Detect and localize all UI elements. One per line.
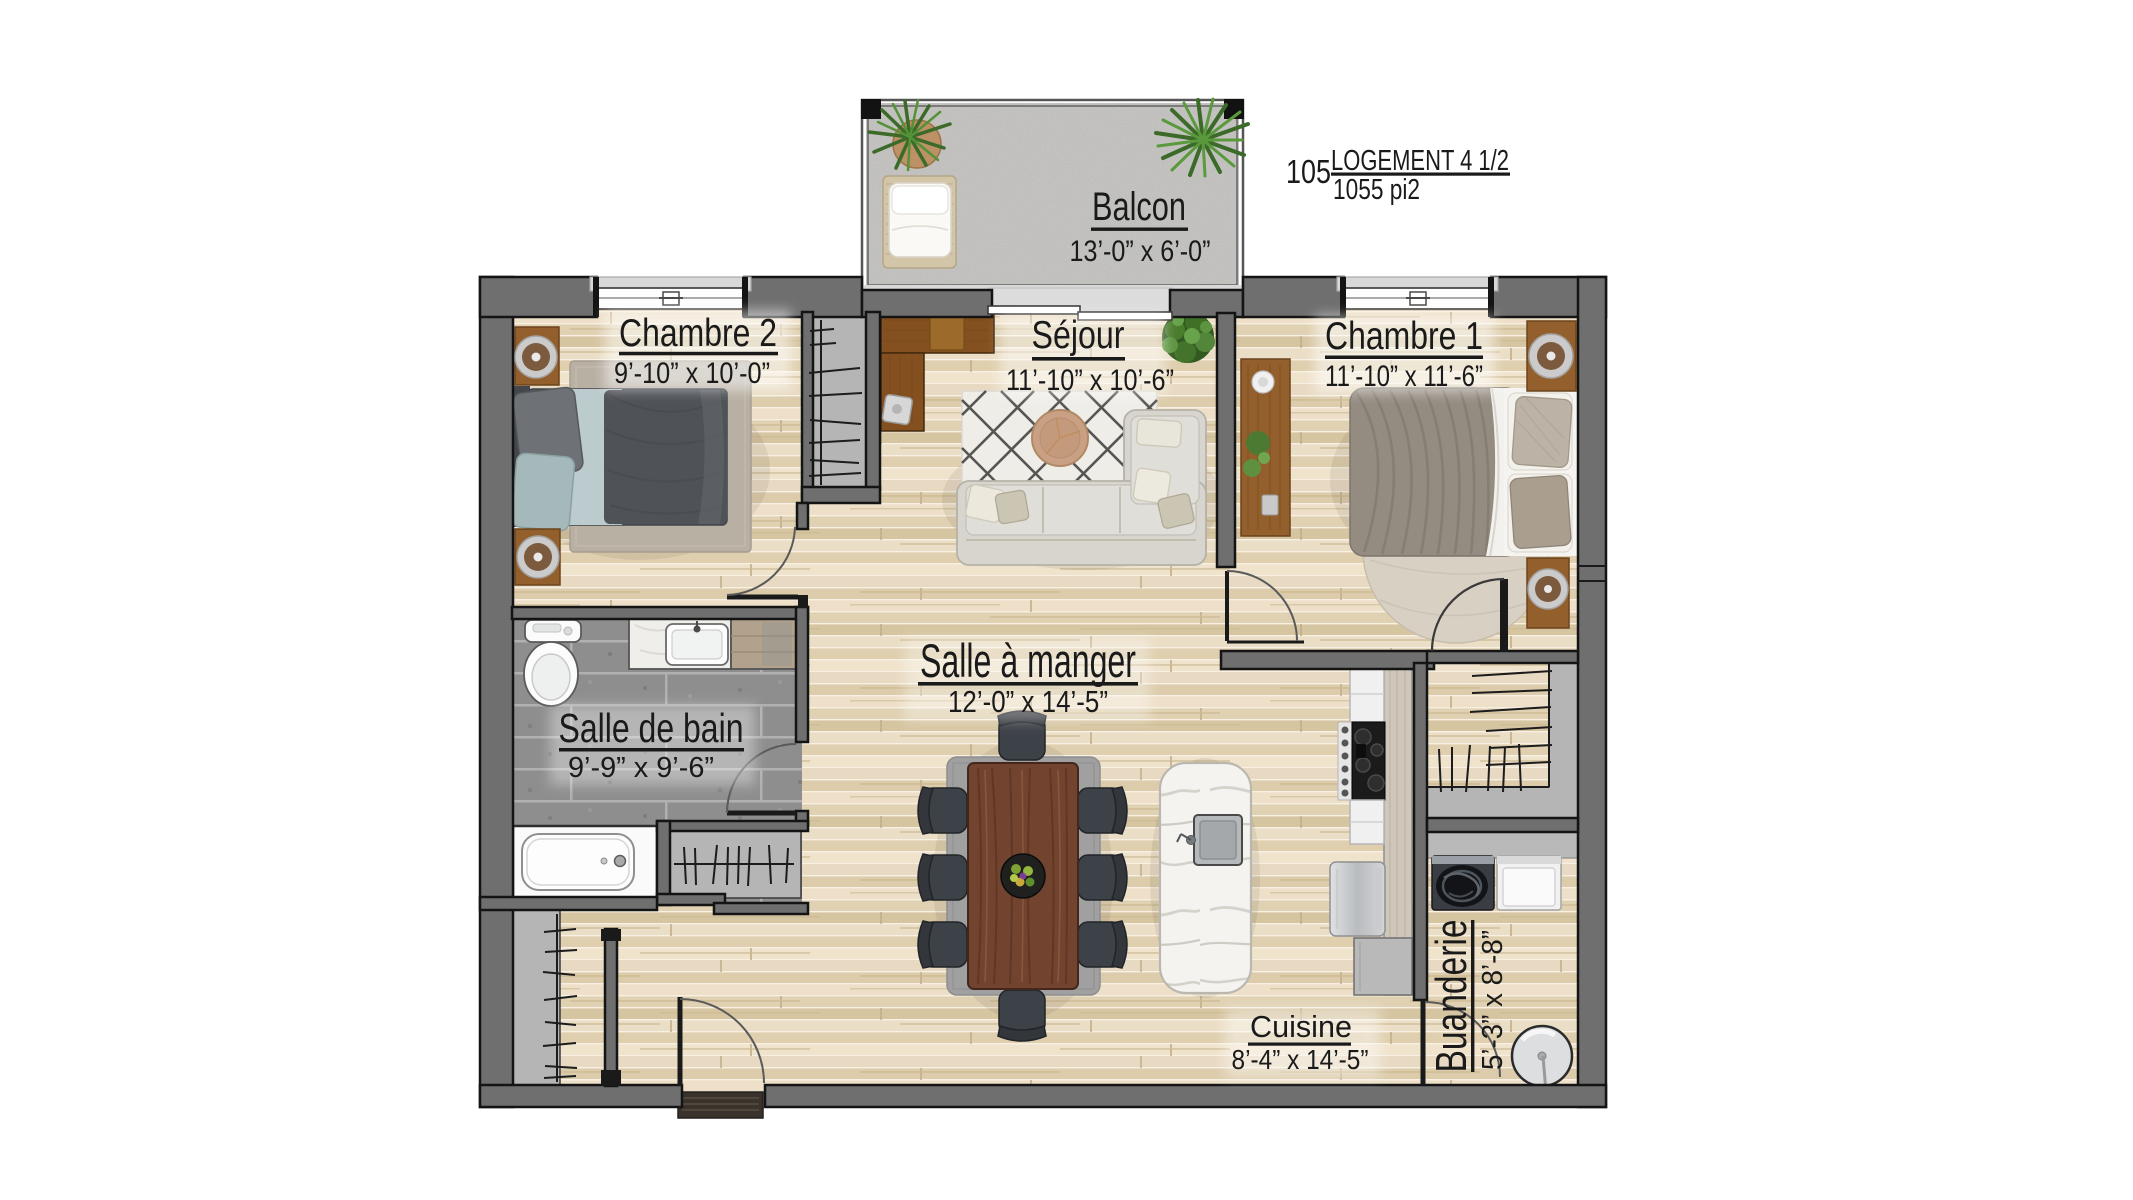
svg-text:Séjour: Séjour [1032,314,1125,357]
svg-text:5’-3” x 8’-8”: 5’-3” x 8’-8” [1477,930,1509,1070]
svg-text:8’-4” x 14’-5”: 8’-4” x 14’-5” [1232,1044,1369,1075]
svg-text:Salle à manger: Salle à manger [920,634,1136,687]
svg-text:105: 105 [1286,153,1331,190]
svg-text:12’-0” x 14’-5”: 12’-0” x 14’-5” [948,684,1108,719]
svg-text:11’-10” x 11’-6”: 11’-10” x 11’-6” [1325,360,1483,393]
svg-text:9’-10” x 10’-0”: 9’-10” x 10’-0” [614,357,770,390]
svg-text:13’-0” x 6’-0”: 13’-0” x 6’-0” [1070,235,1211,268]
svg-text:Buanderie: Buanderie [1427,920,1476,1073]
svg-text:LOGEMENT 4 1/2: LOGEMENT 4 1/2 [1331,145,1509,177]
svg-text:11’-10” x 10’-6”: 11’-10” x 10’-6” [1006,364,1174,397]
svg-text:Chambre 1: Chambre 1 [1325,315,1483,358]
svg-text:Cuisine: Cuisine [1250,1009,1352,1044]
svg-text:Balcon: Balcon [1092,185,1186,229]
svg-text:Salle de bain: Salle de bain [559,705,744,751]
svg-text:Chambre 2: Chambre 2 [619,312,777,355]
svg-text:1055 pi2: 1055 pi2 [1333,174,1420,206]
svg-text:9’-9” x 9’-6”: 9’-9” x 9’-6” [568,752,714,784]
